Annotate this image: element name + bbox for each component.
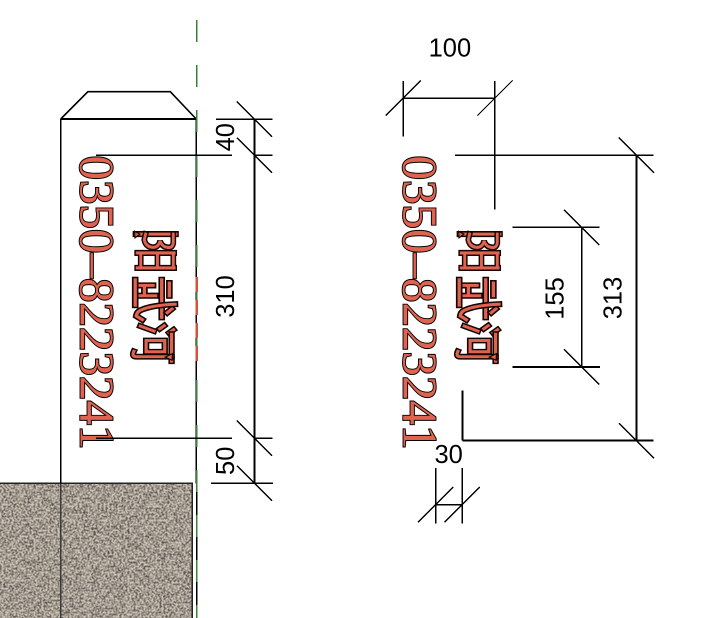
svg-text:50: 50 — [212, 447, 240, 475]
svg-text:313: 313 — [599, 277, 627, 320]
svg-text:155: 155 — [542, 277, 570, 320]
svg-text:0350–8223241: 0350–8223241 — [393, 156, 448, 450]
svg-text:310: 310 — [212, 275, 240, 318]
svg-text:40: 40 — [212, 123, 240, 151]
svg-text:0350–8223241: 0350–8223241 — [70, 156, 125, 450]
svg-text:100: 100 — [429, 35, 472, 63]
svg-text:30: 30 — [435, 441, 463, 469]
